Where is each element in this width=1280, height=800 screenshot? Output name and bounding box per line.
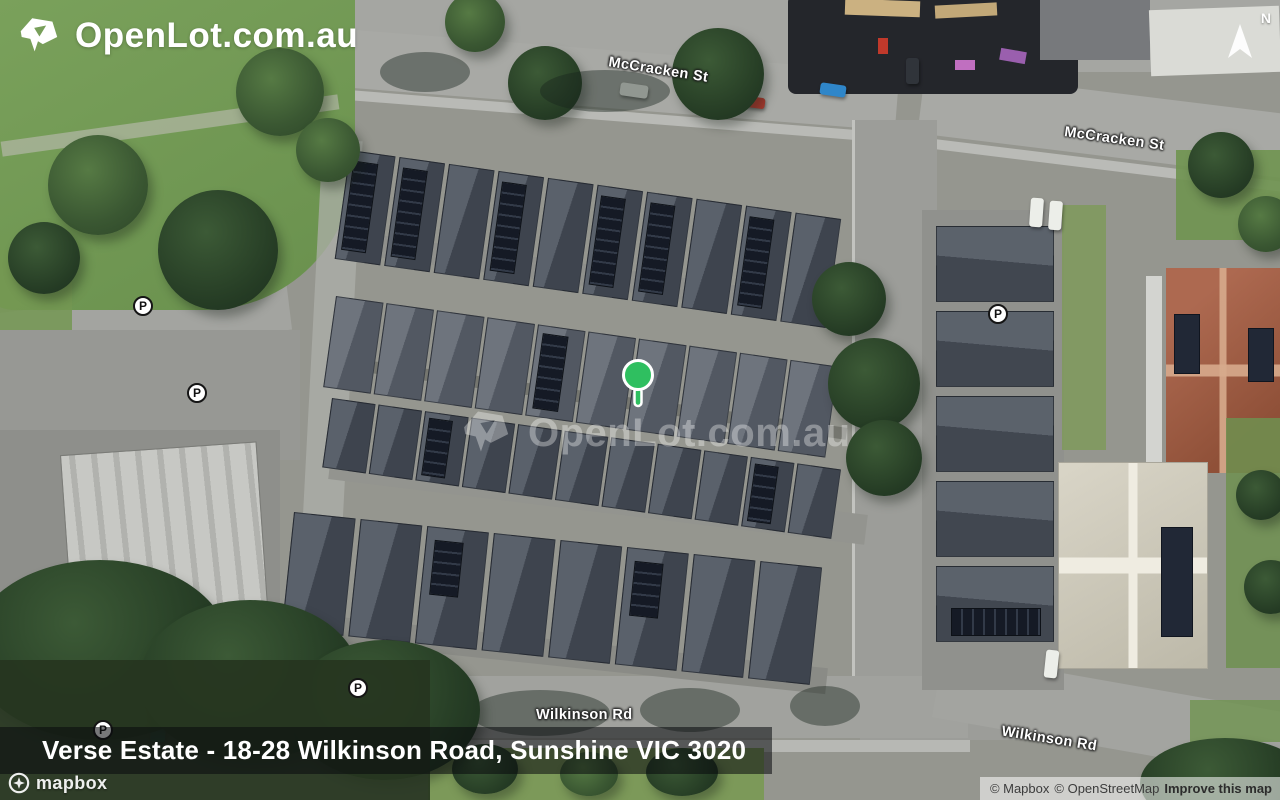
townhouse-roof	[936, 566, 1054, 642]
townhouse-roof	[475, 317, 535, 415]
solar-panel-array	[738, 216, 775, 309]
solar-panel-array	[638, 202, 675, 295]
driveway	[1146, 276, 1162, 476]
townhouse-roof	[936, 226, 1054, 302]
townhouse-roof	[936, 481, 1054, 557]
solar-panel-array	[490, 181, 527, 274]
north-arrow-icon	[1222, 22, 1258, 66]
openlot-logo-text: OpenLot.com.au	[75, 16, 358, 56]
tree	[1236, 470, 1280, 520]
townhouse-roof	[322, 398, 375, 473]
attribution-osm: © OpenStreetMap	[1054, 781, 1159, 796]
improve-this-map-link[interactable]: Improve this map	[1164, 781, 1272, 796]
tree	[8, 222, 80, 294]
mapbox-wordmark: mapbox	[36, 773, 107, 794]
address-text: Verse Estate - 18-28 Wilkinson Road, Sun…	[42, 735, 746, 766]
solar-panel-array	[747, 464, 779, 525]
car	[1048, 201, 1063, 231]
map-canvas[interactable]: OpenLot.com.au N OpenLot.com.au McCracke…	[0, 0, 1280, 800]
attribution-bar: © Mapbox © OpenStreetMap Improve this ma…	[980, 777, 1280, 800]
attribution-mapbox: © Mapbox	[990, 781, 1049, 796]
mapbox-icon	[8, 772, 30, 794]
solar-panel-array	[1174, 314, 1200, 374]
tree	[158, 190, 278, 310]
townhouse-roof	[369, 405, 422, 480]
tree	[1238, 196, 1280, 252]
construction-site	[788, 0, 1078, 94]
townhouse-row	[936, 226, 1054, 642]
solar-panel-array	[629, 561, 663, 619]
solar-panel-array	[391, 167, 428, 260]
solar-panel-array	[430, 540, 464, 598]
solar-panel-array	[589, 195, 626, 288]
tree	[1188, 132, 1254, 198]
mapbox-logo[interactable]: mapbox	[8, 772, 107, 794]
townhouse-roof	[482, 533, 556, 657]
site-material	[955, 60, 975, 70]
townhouse-roof	[615, 547, 689, 671]
street-label-wilkinson-west: Wilkinson Rd	[536, 707, 633, 723]
car	[1029, 198, 1044, 228]
townhouse-roof	[374, 303, 434, 401]
car	[906, 58, 919, 84]
address-banner: Verse Estate - 18-28 Wilkinson Road, Sun…	[0, 727, 772, 774]
timber-stack	[845, 0, 921, 17]
townhouse-row	[335, 150, 841, 328]
townhouse-roof	[548, 540, 622, 664]
building-roof	[1040, 0, 1150, 60]
house-roof-cream	[1058, 462, 1208, 669]
tree-shadow	[380, 52, 470, 92]
solar-panel-array	[1161, 527, 1193, 637]
townhouse-roof	[424, 310, 484, 408]
tree-shadow	[790, 686, 860, 726]
solar-panel-array	[532, 333, 568, 412]
tree	[48, 135, 148, 235]
parking-icon: P	[187, 383, 207, 403]
townhouse-roof	[936, 396, 1054, 472]
townhouse-roof	[415, 526, 489, 650]
townhouse-roof	[681, 554, 755, 678]
parking-icon: P	[988, 304, 1008, 324]
site-material	[878, 38, 888, 54]
north-compass: N	[1222, 10, 1274, 66]
north-label: N	[1261, 10, 1271, 26]
solar-panel-array	[421, 418, 453, 479]
grass-strip	[1190, 700, 1280, 742]
grass-strip	[1226, 418, 1280, 668]
parking-icon: P	[348, 678, 368, 698]
openlot-logo: OpenLot.com.au	[14, 12, 358, 60]
parking-icon: P	[133, 296, 153, 316]
watermark-logo-icon	[456, 404, 514, 462]
openlot-logo-icon	[14, 12, 62, 60]
townhouse-roof	[741, 457, 794, 532]
tree-shadow	[640, 688, 740, 732]
tree	[296, 118, 360, 182]
solar-panel-array	[1248, 328, 1274, 382]
grass-strip	[1062, 205, 1106, 450]
townhouse-roof	[348, 519, 422, 643]
tree	[812, 262, 886, 336]
townhouse-roof	[748, 561, 822, 685]
solar-panel-array	[951, 608, 1041, 637]
watermark-text: OpenLot.com.au	[528, 411, 851, 456]
property-marker-pin[interactable]	[620, 358, 656, 421]
tree	[846, 420, 922, 496]
